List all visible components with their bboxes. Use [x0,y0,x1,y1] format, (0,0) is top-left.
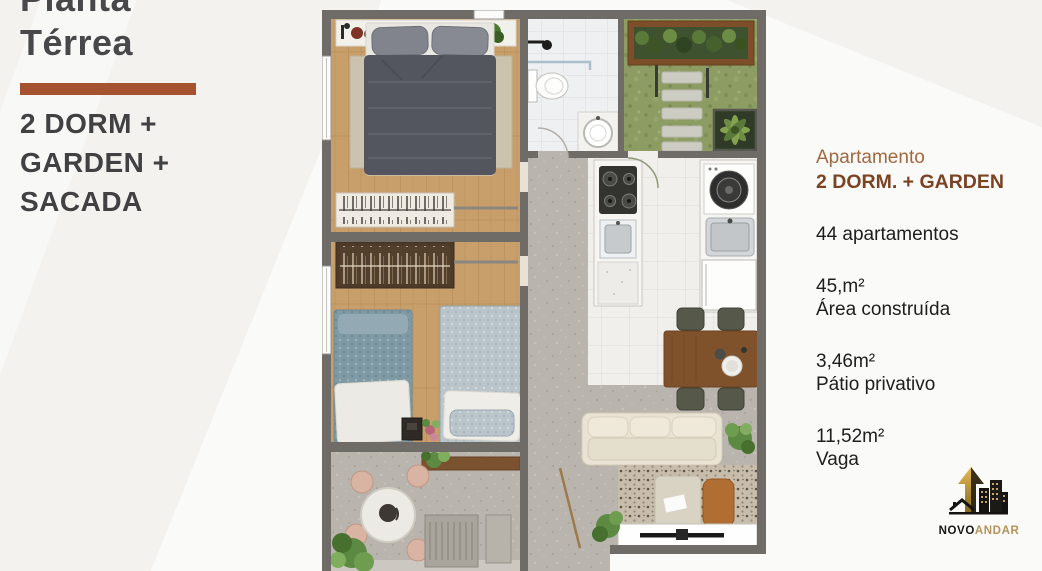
feature-line-3: SACADA [20,182,169,221]
unit-eyebrow: Apartamento [816,146,1036,170]
single-bed-right [440,306,522,446]
bathroom-sink-icon [578,112,618,154]
patio-utility-units [425,515,511,567]
feature-line-2: GARDEN + [20,143,169,182]
details-panel: Apartamento 2 DORM. + GARDEN 44 apartame… [816,146,1036,471]
kitchen-appliance-column [700,160,757,312]
room-corridor [528,151,588,571]
logo-mark [948,462,1010,518]
stat-patio: 3,46m² Pátio privativo [816,350,1036,396]
page-title: Planta Térrea [20,0,133,65]
logo-text-novo: NOVO [939,525,975,537]
garden-planter [628,21,754,65]
unit-features: 2 DORM + GARDEN + SACADA [20,104,169,221]
novo-andar-logo: NOVOANDAR [933,462,1025,537]
nightstand [402,418,440,441]
unit-type-title: 2 DORM. + GARDEN [816,170,1036,194]
double-bed [364,23,496,175]
logo-text: NOVOANDAR [933,525,1025,537]
garden-small-planter [714,110,756,150]
feature-line-1: 2 DORM + [20,104,169,143]
slide: Planta Térrea 2 DORM + GARDEN + SACADA [0,0,1042,571]
kitchen-counter-left [594,160,642,306]
stat-parking-value: 11,52m² [816,426,884,447]
ottoman [703,479,734,527]
coffee-table [655,476,701,528]
sofa [582,413,722,465]
stat-built-area-value: 45,m² [816,276,865,297]
bedroom2-wardrobe [336,242,454,288]
tv-console [618,524,757,548]
accent-divider [20,83,196,95]
floor-plan [322,10,766,571]
logo-text-andar: ANDAR [975,525,1020,537]
stat-patio-label: Pátio privativo [816,373,1036,396]
title-line-1: Planta [20,0,133,21]
bedroom1-wardrobe [336,193,454,227]
stat-apartments: 44 apartamentos [816,223,1036,246]
stat-patio-value: 3,46m² [816,351,875,372]
stat-apartments-value: 44 apartamentos [816,224,959,245]
stat-built-area-label: Área construída [816,298,1036,321]
single-bed-left [334,310,412,444]
stat-built-area: 45,m² Área construída [816,275,1036,321]
title-line-2: Térrea [20,21,133,65]
logo-buildings [979,480,1008,514]
